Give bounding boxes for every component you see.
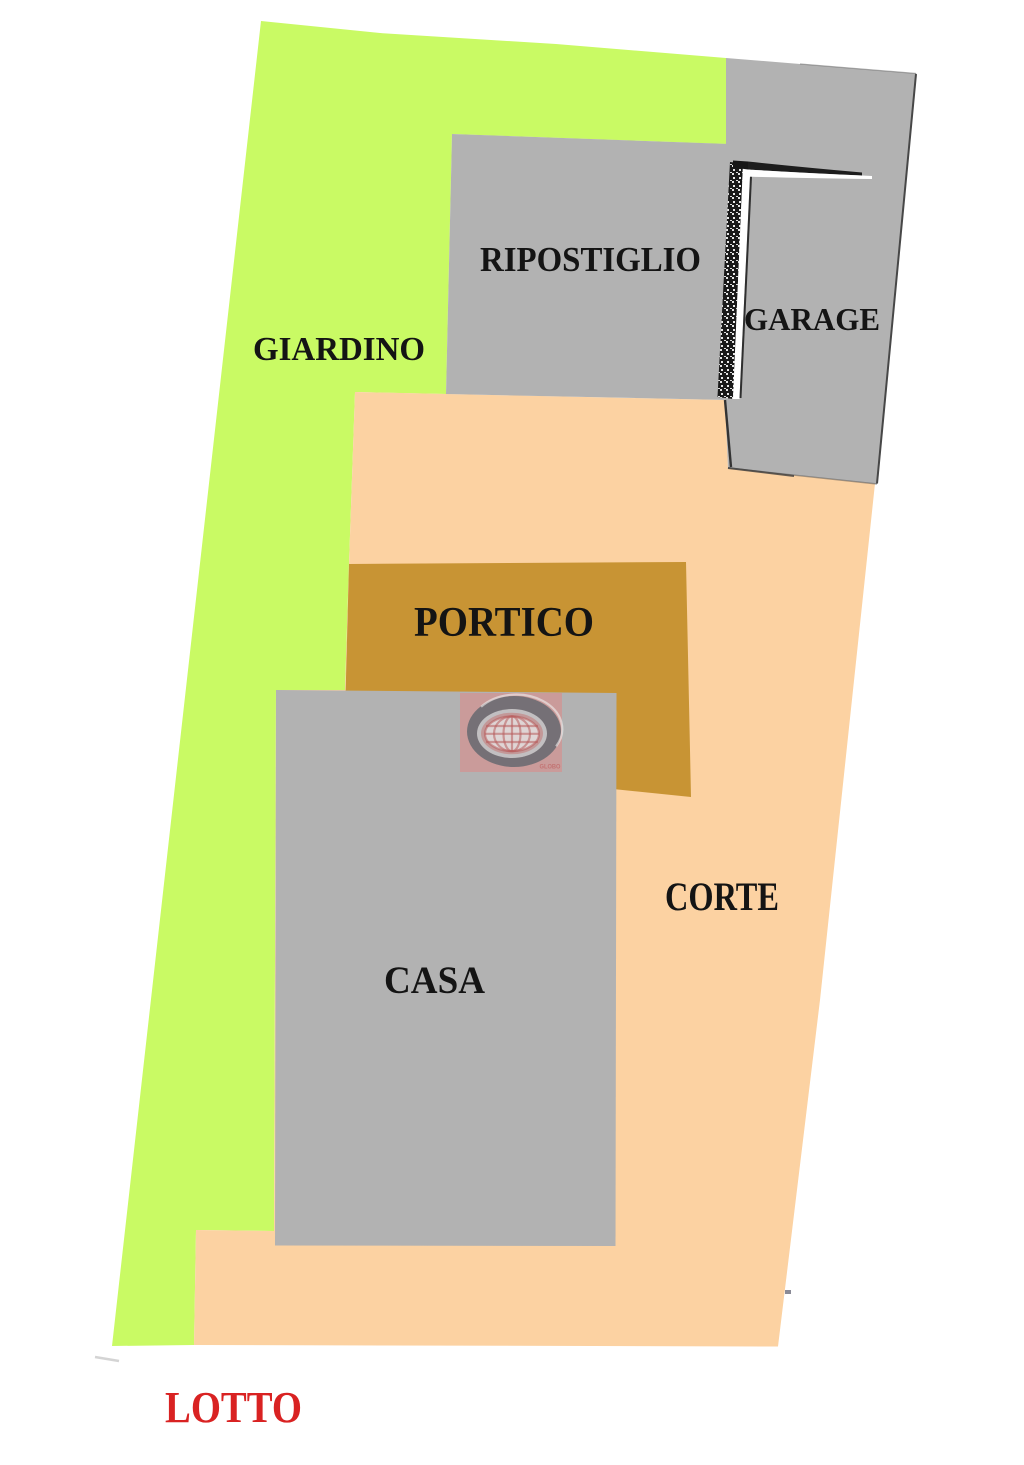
- svg-text:RIPOSTIGLIO: RIPOSTIGLIO: [480, 240, 701, 279]
- svg-text:CORTE: CORTE: [665, 874, 779, 919]
- svg-text:GARAGE: GARAGE: [744, 301, 880, 337]
- svg-text:PORTICO: PORTICO: [414, 600, 594, 646]
- svg-text:CASA: CASA: [384, 959, 485, 1002]
- svg-text:GIARDINO: GIARDINO: [253, 331, 425, 368]
- svg-text:LOTTO: LOTTO: [165, 1383, 302, 1432]
- svg-text:GLOBO: GLOBO: [540, 764, 561, 771]
